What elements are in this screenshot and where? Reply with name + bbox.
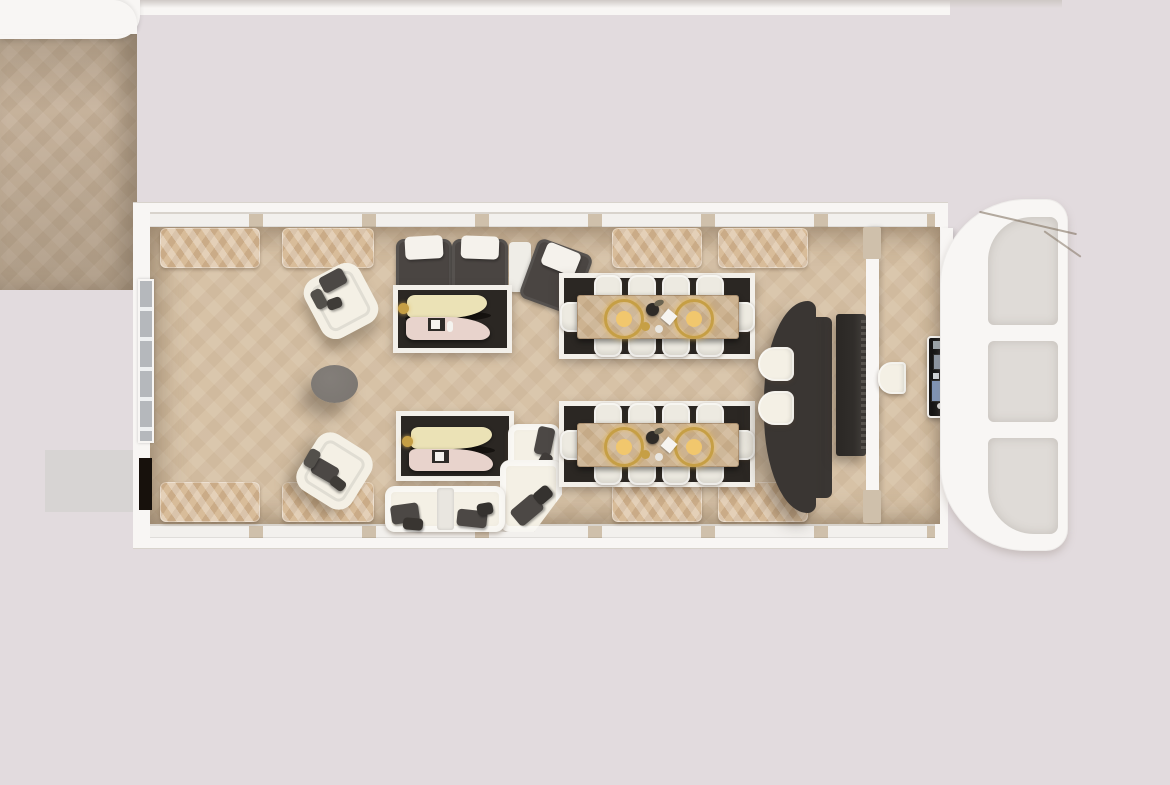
wall-bench	[160, 228, 260, 268]
wall-bench	[612, 228, 702, 268]
windshield-pane	[988, 341, 1058, 422]
partition-post	[863, 227, 881, 259]
panel-button	[933, 373, 939, 379]
charger-center	[616, 439, 632, 455]
charger-plate	[674, 299, 714, 339]
charger-center	[686, 439, 702, 455]
render-canvas	[0, 0, 1170, 785]
partition-post	[863, 490, 881, 523]
service-door-opening	[139, 458, 152, 510]
bar-stool	[758, 347, 794, 381]
centerpiece-gold-cup	[641, 322, 650, 331]
charger-plate	[674, 427, 714, 467]
window-band-bottom	[150, 524, 935, 538]
glass-partition-door	[138, 279, 154, 443]
book-page	[435, 452, 444, 461]
wall-bench	[718, 228, 808, 268]
vestibule-stool	[878, 362, 906, 394]
charger-plate	[604, 427, 644, 467]
left-section-bottom-wall	[0, 0, 137, 34]
coffee-table-base	[409, 449, 493, 471]
centerpiece-plate	[655, 453, 663, 461]
gold-dish	[402, 436, 413, 447]
wall-bench	[612, 482, 702, 522]
book-page	[431, 320, 440, 329]
charger-center	[686, 311, 702, 327]
vehicle-drop-shadow	[0, 0, 1062, 8]
bar-stool	[758, 391, 794, 425]
centerpiece-gold-cup	[641, 450, 650, 459]
left-section-cabinet	[45, 450, 140, 512]
window-band-top	[150, 212, 935, 227]
wall-bench	[160, 482, 260, 522]
charger-plate	[604, 299, 644, 339]
left-section-floor	[0, 0, 137, 290]
sofa-pillow	[404, 235, 443, 260]
centerpiece-plate	[655, 325, 663, 333]
sofa-pillow	[403, 517, 424, 531]
round-side-table	[311, 365, 358, 403]
charger-center	[616, 311, 632, 327]
sofa-pillow	[461, 235, 500, 259]
wall-bench	[282, 228, 374, 268]
candle	[447, 321, 453, 332]
gold-dish	[398, 303, 409, 314]
sofa-side-table	[437, 488, 454, 530]
